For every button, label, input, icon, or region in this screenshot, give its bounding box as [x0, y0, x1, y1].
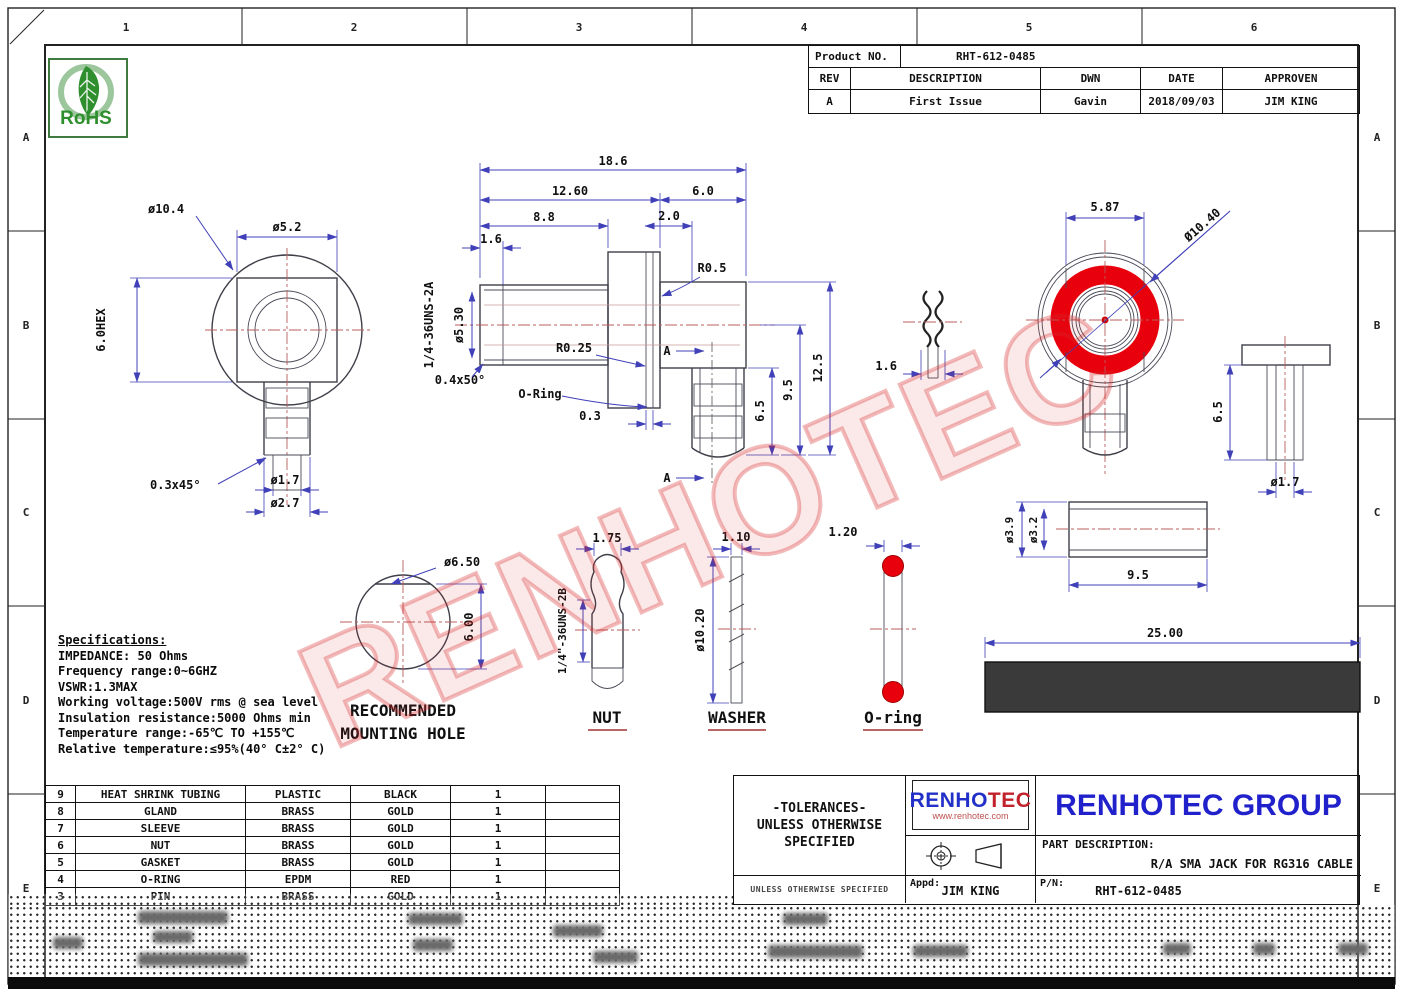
table-row: 4 O-RING EPDM RED 1 [46, 871, 619, 888]
dim-side-chamfer: 0.4x50° [435, 373, 486, 387]
dim-oring-width: 1.20 [829, 525, 858, 539]
oring-section-top [883, 556, 904, 577]
zone-row-d2: D [1374, 694, 1381, 707]
title-block: -TOLERANCES- UNLESS OTHERWISE SPECIFIED … [733, 775, 1360, 905]
approven-value: JIM KING [1223, 90, 1359, 113]
cell-item-no: 5 [46, 854, 76, 870]
front-view: 5.87 Ø10.40 [1026, 200, 1230, 474]
zone-row-b2: B [1374, 319, 1381, 332]
spec-line: Working voltage:500V rms @ sea level [58, 695, 325, 711]
cell-item-no: 8 [46, 803, 76, 819]
logo-text-red: TEC [988, 789, 1032, 812]
dim-hole-dia: ø6.50 [444, 555, 480, 569]
dim-rear-chamfer: 0.3x45° [150, 478, 201, 492]
cell-item-no: 6 [46, 837, 76, 853]
cell-item-no: 4 [46, 871, 76, 887]
cell-empty [546, 871, 619, 887]
zone-col-6: 6 [1251, 21, 1258, 34]
censored-text-blob [768, 945, 863, 958]
zone-row-b: B [23, 319, 30, 332]
drawing-sheet: .ol{stroke:#3f3f4a;stroke-width:1.4;fill… [0, 0, 1403, 992]
dim-tubing-length: 25.00 [1147, 626, 1183, 640]
cell-color: GOLD [351, 803, 451, 819]
logo-url: www.renhotec.com [932, 812, 1008, 822]
dim-sleeve-od: ø3.9 [1003, 517, 1016, 544]
censored-text-blob [1338, 943, 1368, 955]
sheet-bottom-edge [8, 977, 1395, 989]
oring-section-bottom [883, 682, 904, 703]
tolerances-line: SPECIFIED [784, 834, 854, 851]
zone-row-d: D [23, 694, 30, 707]
rohs-logo: RoHS [48, 58, 128, 138]
projection-symbols [906, 836, 1036, 876]
part-description-label: PART DESCRIPTION: [1036, 836, 1361, 853]
dim-sleeve-id: ø3.2 [1027, 517, 1040, 544]
company-name: RENHOTEC GROUP [1036, 776, 1361, 836]
part-description-cell: PART DESCRIPTION: R/A SMA JACK FOR RG316… [1036, 836, 1361, 876]
zone-col-1: 1 [123, 21, 130, 34]
dim-side-thread-dia: ø5.30 [452, 307, 466, 343]
censored-text-blob [593, 951, 638, 963]
tolerances-footer: UNLESS OTHERWISE SPECIFIED [734, 876, 906, 903]
product-no-value: RHT-612-0485 [901, 46, 1359, 67]
dim-front-dia: Ø10.40 [1181, 205, 1224, 245]
cell-color: RED [351, 871, 451, 887]
cell-material: BRASS [246, 837, 351, 853]
heat-shrink-bar [985, 662, 1360, 712]
table-row: 7 SLEEVE BRASS GOLD 1 [46, 820, 619, 837]
specs-title: Specifications: [58, 633, 325, 649]
spec-line: VSWR:1.3MAX [58, 680, 325, 696]
censored-text-blob [553, 925, 603, 937]
cell-empty [546, 837, 619, 853]
dim-side-r2: R0.25 [556, 341, 592, 355]
dim-side-total: 18.6 [599, 154, 628, 168]
parts-table: 9 HEAT SHRINK TUBING PLASTIC BLACK 1 8 G… [45, 785, 620, 906]
censored-band-small [8, 894, 733, 905]
product-no-label: Product NO. [809, 46, 901, 67]
cell-color: BLACK [351, 786, 451, 802]
washer-caption: WASHER [708, 708, 766, 727]
pin-part-view: 6.5 ø1.7 [1211, 336, 1330, 498]
cell-material: BRASS [246, 803, 351, 819]
description-header: DESCRIPTION [851, 68, 1041, 89]
cell-qty: 1 [451, 820, 546, 836]
dim-side-oring-label: O-Ring [518, 387, 561, 401]
cell-color: GOLD [351, 820, 451, 836]
table-row: 8 GLAND BRASS GOLD 1 [46, 803, 619, 820]
tolerances-line: -TOLERANCES- [773, 800, 867, 817]
censored-text-blob [783, 913, 828, 925]
cell-empty [546, 786, 619, 802]
side-view: 18.6 12.60 6.0 8.8 2.0 1.6 1/4-36UNS-2A … [422, 154, 836, 486]
first-angle-projection-icon [926, 842, 956, 870]
censored-text-blob [913, 945, 968, 957]
approven-header: APPROVEN [1223, 68, 1359, 89]
cell-part-name: O-RING [76, 871, 246, 887]
spec-line: Insulation resistance:5000 Ohms min [58, 711, 325, 727]
date-header: DATE [1141, 68, 1223, 89]
rear-view: ø10.4 ø5.2 6.0HEX 0.3x45° ø1.7 ø2.7 [94, 202, 370, 517]
dim-rear-hex: 6.0HEX [94, 308, 108, 352]
cell-color: GOLD [351, 837, 451, 853]
zone-row-a: A [23, 131, 30, 144]
dim-nut-thread: 1/4"-36UNS-2B [556, 588, 569, 674]
cone-projection-icon [976, 844, 1001, 868]
dim-washer-width: 1.10 [722, 530, 751, 544]
dim-pin-height: 6.5 [1211, 401, 1225, 423]
zone-col-2: 2 [351, 21, 358, 34]
cell-material: BRASS [246, 820, 351, 836]
censored-text-blob [53, 937, 83, 949]
cell-qty: 1 [451, 854, 546, 870]
zone-row-c2: C [1374, 506, 1381, 519]
cell-empty [546, 854, 619, 870]
dim-side-seg4: 2.0 [658, 209, 680, 223]
cell-part-name: HEAT SHRINK TUBING [76, 786, 246, 802]
cell-qty: 1 [451, 837, 546, 853]
dim-side-seg5: 1.6 [480, 232, 502, 246]
pn-label: P/N: [1036, 876, 1068, 891]
censored-text-blob [1163, 943, 1191, 955]
dim-rear-body-dia: ø5.2 [273, 220, 302, 234]
zone-col-3: 3 [576, 21, 583, 34]
nut-caption: NUT [593, 708, 622, 727]
section-label-top: A [663, 344, 671, 358]
dim-hole-height: 6.00 [462, 613, 476, 642]
cell-qty: 1 [451, 803, 546, 819]
cell-qty: 1 [451, 871, 546, 887]
dim-sleeve-length: 9.5 [1127, 568, 1149, 582]
rev-value: A [809, 90, 851, 113]
dim-pin-dia: ø1.7 [1271, 475, 1300, 489]
appd-label: Appd: [906, 876, 944, 891]
part-description-value: R/A SMA JACK FOR RG316 CABLE [1036, 855, 1361, 873]
company-logo: RENHOTEC www.renhotec.com [906, 776, 1036, 836]
dwn-value: Gavin [1041, 90, 1141, 113]
cell-material: EPDM [246, 871, 351, 887]
cell-empty [546, 820, 619, 836]
zone-row-c: C [23, 506, 30, 519]
zone-col-5: 5 [1026, 21, 1033, 34]
censored-text-blob [153, 931, 193, 943]
mounting-hole-view: ø6.50 6.00 RECOMMENDED MOUNTING HOLE [340, 555, 487, 743]
spec-line: IMPEDANCE: 50 Ohms [58, 649, 325, 665]
censored-band [8, 905, 1395, 978]
dim-side-seg3: 8.8 [533, 210, 555, 224]
sleeve-view: ø3.9 ø3.2 9.5 [1003, 502, 1220, 592]
specifications-block: Specifications: IMPEDANCE: 50 Ohms Frequ… [58, 633, 325, 757]
logo-text-blue: RENHO [910, 789, 988, 812]
oring-caption: O-ring [864, 708, 922, 727]
dim-rear-pin2-dia: ø2.7 [271, 496, 300, 510]
tolerances-line: UNLESS OTHERWISE [757, 817, 882, 834]
spec-line: Relative temperature:≤95%(40° C±2° C) [58, 742, 325, 758]
censored-text-blob [138, 953, 248, 966]
revision-table: Product NO. RHT-612-0485 REV DESCRIPTION… [808, 45, 1360, 114]
dim-side-groove: 0.3 [579, 409, 601, 423]
zone-col-4: 4 [801, 21, 808, 34]
oring-view: 1.20 O-ring [829, 525, 923, 730]
censored-text-blob [413, 939, 453, 951]
censored-text-blob [1253, 943, 1275, 955]
dim-gasket: 1.6 [875, 359, 897, 373]
dim-side-r1: R0.5 [698, 261, 727, 275]
zone-row-e2: E [1374, 882, 1381, 895]
pn-cell: P/N: RHT-612-0485 [1036, 876, 1361, 903]
censored-text-blob [138, 911, 228, 924]
cell-color: GOLD [351, 854, 451, 870]
cell-part-name: SLEEVE [76, 820, 246, 836]
description-value: First Issue [851, 90, 1041, 113]
dim-nut-width: 1.75 [593, 531, 622, 545]
cell-material: PLASTIC [246, 786, 351, 802]
cell-part-name: GASKET [76, 854, 246, 870]
date-value: 2018/09/03 [1141, 90, 1223, 113]
dim-rear-flange-dia: ø10.4 [148, 202, 184, 216]
dim-side-seg1: 12.60 [552, 184, 588, 198]
cell-item-no: 9 [46, 786, 76, 802]
rohs-label: RoHS [60, 108, 112, 129]
dwn-header: DWN [1041, 68, 1141, 89]
spec-line: Temperature range:-65℃ TO +155℃ [58, 726, 325, 742]
dim-side-h1: 6.5 [753, 400, 767, 422]
dim-side-thread: 1/4-36UNS-2A [422, 281, 436, 368]
appd-cell: Appd: JIM KING [906, 876, 1036, 903]
dim-rear-pin-dia: ø1.7 [271, 473, 300, 487]
table-row: 5 GASKET BRASS GOLD 1 [46, 854, 619, 871]
cell-part-name: NUT [76, 837, 246, 853]
cell-part-name: GLAND [76, 803, 246, 819]
cell-qty: 1 [451, 786, 546, 802]
tolerances-note: -TOLERANCES- UNLESS OTHERWISE SPECIFIED [734, 776, 906, 876]
censored-text-blob [408, 913, 463, 925]
dim-front-flat: 5.87 [1091, 200, 1120, 214]
dim-side-seg2: 6.0 [692, 184, 714, 198]
gasket-view: 1.6 [875, 291, 963, 380]
spec-line: Frequency range:0~6GHZ [58, 664, 325, 680]
dim-washer-dia: ø10.20 [693, 608, 707, 651]
dim-side-h2: 9.5 [781, 379, 795, 401]
mounting-hole-caption-1: RECOMMENDED [350, 701, 456, 720]
cell-empty [546, 803, 619, 819]
mounting-hole-caption-2: MOUNTING HOLE [340, 724, 465, 743]
rev-header: REV [809, 68, 851, 89]
nut-green-tip [592, 668, 623, 689]
zone-row-a2: A [1374, 131, 1381, 144]
table-row: 9 HEAT SHRINK TUBING PLASTIC BLACK 1 [46, 786, 619, 803]
cell-item-no: 7 [46, 820, 76, 836]
section-label-bottom: A [663, 471, 671, 485]
cell-material: BRASS [246, 854, 351, 870]
washer-view: 1.10 ø10.20 WASHER [693, 530, 766, 730]
tubing-view: 25.00 [985, 626, 1360, 712]
table-row: 6 NUT BRASS GOLD 1 [46, 837, 619, 854]
nut-view: 1.75 1/4"-36UNS-2B NUT [556, 531, 640, 730]
dim-side-h3: 12.5 [811, 354, 825, 383]
